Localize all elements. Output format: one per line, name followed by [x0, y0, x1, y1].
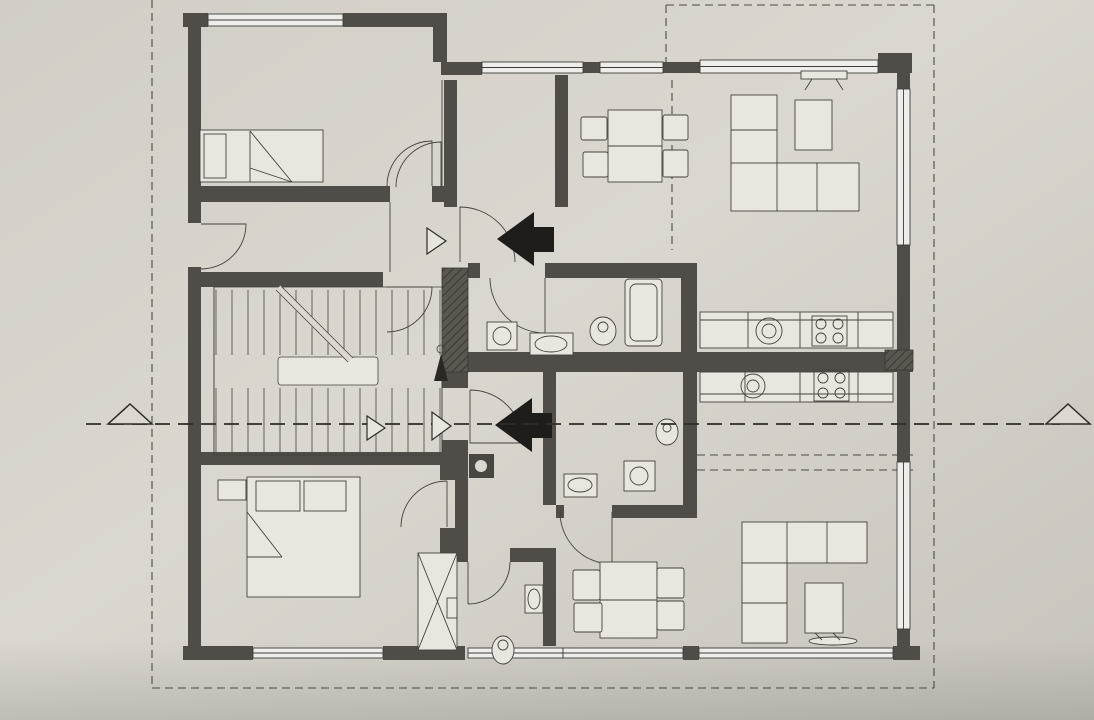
washing-machine [487, 322, 517, 350]
bathtub [625, 279, 662, 346]
floor-plan-svg [0, 0, 1094, 720]
kitchen-counter-lower [700, 370, 893, 402]
washing-machine [624, 461, 655, 491]
toilet [590, 317, 616, 345]
coffee-table [795, 100, 832, 150]
bed-single [200, 130, 323, 182]
floor-plan-photo [0, 0, 1094, 720]
wardrobe [418, 553, 457, 650]
nightstand [218, 480, 246, 500]
kitchen-counter-upper [700, 312, 893, 348]
